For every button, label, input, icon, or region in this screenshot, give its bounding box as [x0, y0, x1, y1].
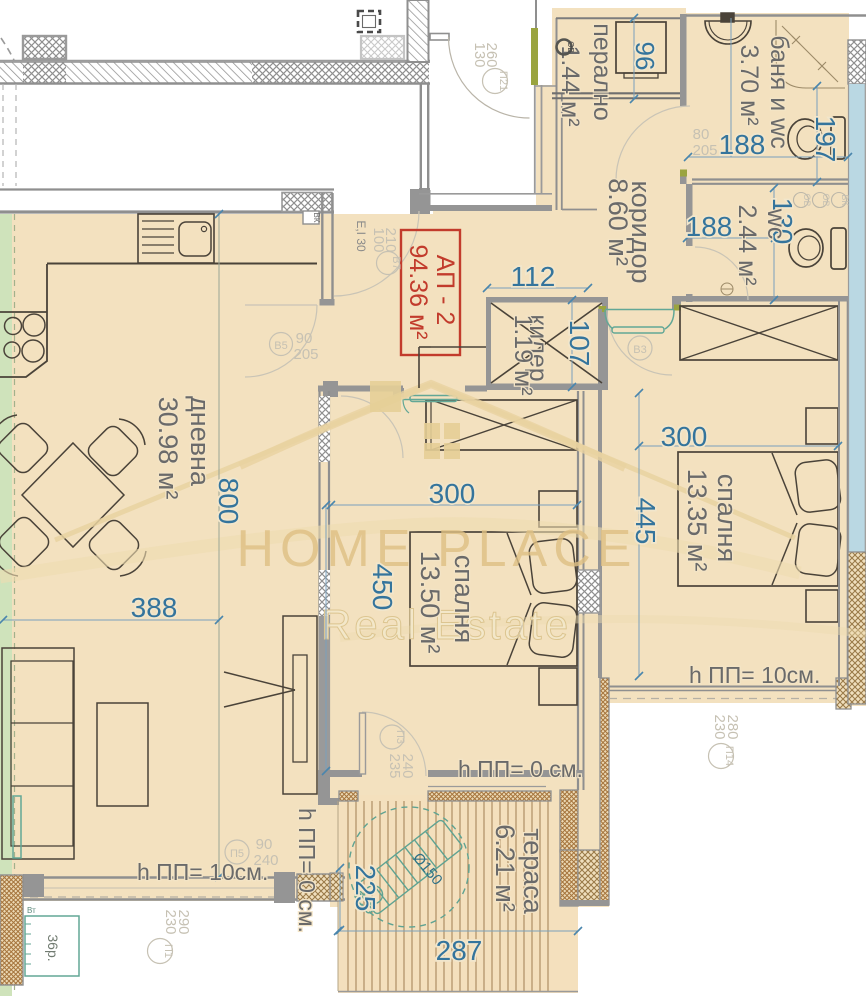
svg-text:300: 300 [429, 478, 476, 509]
svg-text:300: 300 [661, 421, 708, 452]
svg-text:В3: В3 [633, 344, 646, 356]
svg-text:h ПП= 0 см.: h ПП= 0 см. [458, 756, 583, 782]
svg-text:ОВ: ОВ [566, 41, 575, 53]
svg-text:Real Estate: Real Estate [321, 601, 571, 648]
svg-text:13.35 м²: 13.35 м² [682, 469, 712, 572]
svg-text:290: 290 [175, 909, 192, 934]
svg-text:96: 96 [630, 42, 660, 71]
svg-text:П1: П1 [162, 944, 174, 958]
svg-text:13.50 м²: 13.50 м² [415, 551, 445, 654]
svg-text:П21: П21 [497, 71, 509, 91]
svg-text:П14: П14 [723, 746, 735, 766]
svg-text:205: 205 [293, 346, 318, 363]
svg-text:АП - 2: АП - 2 [431, 255, 459, 325]
svg-text:260: 260 [483, 42, 500, 67]
svg-text:800: 800 [213, 478, 244, 525]
svg-text:ВК: ВК [840, 194, 850, 206]
svg-text:197: 197 [810, 116, 841, 163]
svg-text:Вт: Вт [27, 906, 36, 915]
svg-text:205: 205 [692, 142, 717, 159]
svg-text:94.36 м²: 94.36 м² [404, 244, 432, 339]
svg-text:П5: П5 [230, 848, 244, 860]
svg-text:210: 210 [382, 227, 399, 252]
svg-text:107: 107 [564, 320, 595, 367]
svg-text:h ПП= 10см.: h ПП= 10см. [689, 662, 820, 688]
svg-text:188: 188 [686, 211, 733, 242]
svg-text:тераса: тераса [518, 828, 548, 915]
svg-text:280: 280 [724, 714, 741, 739]
svg-text:3.70 м²: 3.70 м² [735, 44, 763, 125]
svg-text:240: 240 [399, 753, 416, 778]
svg-text:388: 388 [131, 592, 178, 623]
svg-text:дневна: дневна [185, 396, 215, 487]
svg-text:188: 188 [719, 129, 766, 160]
svg-text:1.44 м²: 1.44 м² [556, 45, 584, 126]
svg-text:ОВ: ОВ [821, 193, 831, 206]
svg-text:баня и wc: баня и wc [765, 35, 793, 148]
svg-text:Е,I 30: Е,I 30 [354, 220, 368, 252]
svg-text:36р.: 36р. [45, 934, 61, 961]
svg-text:225: 225 [350, 865, 381, 912]
svg-text:80: 80 [693, 126, 710, 143]
svg-text:П3: П3 [394, 730, 406, 744]
svg-text:h ПП= 10см.: h ПП= 10см. [137, 859, 268, 885]
svg-text:240: 240 [253, 852, 278, 869]
svg-text:8.60 м²: 8.60 м² [603, 178, 633, 266]
svg-text:445: 445 [630, 498, 661, 545]
svg-text:спалня: спалня [712, 474, 742, 562]
svg-text:wc: wc [762, 208, 790, 240]
svg-text:В5: В5 [274, 340, 287, 352]
svg-text:1.19 м²: 1.19 м² [509, 314, 537, 395]
svg-text:30.98 м²: 30.98 м² [153, 397, 183, 500]
svg-text:ОВ: ОВ [802, 193, 812, 206]
svg-text:2.44 м²: 2.44 м² [733, 204, 761, 285]
svg-text:450: 450 [367, 564, 398, 611]
svg-text:112: 112 [511, 261, 556, 292]
svg-text:спалня: спалня [449, 555, 479, 643]
svg-text:h ПП= 0 см.: h ПП= 0 см. [294, 808, 320, 933]
svg-text:перално: перално [588, 23, 616, 121]
svg-text:90: 90 [256, 836, 273, 853]
svg-text:6.21 м²: 6.21 м² [490, 824, 520, 912]
svg-text:287: 287 [436, 935, 483, 966]
svg-text:В7: В7 [390, 256, 402, 269]
svg-text:ВК: ВК [312, 213, 321, 223]
svg-text:90: 90 [296, 330, 313, 347]
